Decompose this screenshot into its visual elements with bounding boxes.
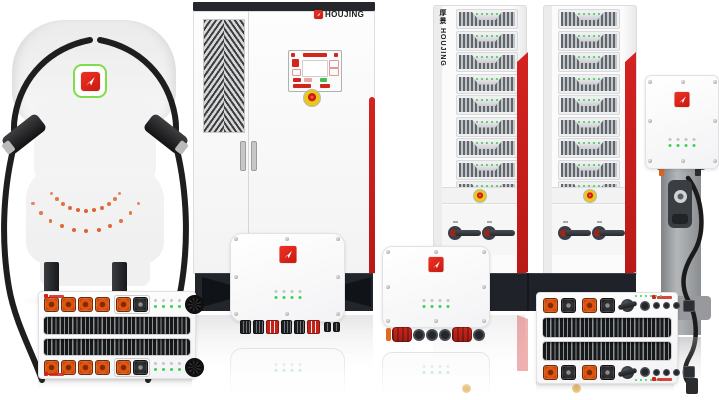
led-dot	[154, 368, 157, 371]
cabinet-brand-label: HOUJING	[325, 10, 364, 19]
led-dot	[486, 164, 488, 166]
led-dot	[282, 290, 285, 293]
module-led-row	[578, 99, 600, 101]
led-dot	[693, 138, 696, 141]
reflection-led-grid	[423, 365, 450, 377]
indicator-dot	[108, 224, 112, 228]
led-dot	[162, 305, 165, 308]
led-dot	[583, 78, 585, 80]
led-dot	[170, 368, 173, 371]
led-dot	[423, 371, 426, 374]
indicator-dot	[72, 228, 76, 232]
power-connector	[44, 297, 59, 312]
led-dot	[439, 299, 442, 302]
led-dot	[274, 296, 277, 299]
module-brand-mark	[44, 294, 64, 298]
charger-module-pair-right	[536, 292, 678, 384]
led-dot	[598, 56, 600, 58]
led-dot	[476, 164, 478, 166]
screw-icon	[234, 275, 238, 279]
status-led-grid	[154, 299, 181, 311]
screw-icon	[234, 312, 238, 316]
connector-group	[114, 358, 150, 377]
rack2-red-stripe	[625, 52, 636, 276]
module-led-row	[578, 56, 600, 58]
led-dot	[431, 305, 434, 308]
led-dot	[677, 138, 680, 141]
right-door-handle	[251, 141, 257, 171]
display-header-bar	[303, 53, 327, 57]
power-connector	[133, 297, 148, 312]
led-dot	[669, 144, 672, 147]
rack1-module-stack	[456, 9, 518, 203]
cursor-arrow-icon	[279, 246, 296, 263]
led-dot	[598, 99, 600, 101]
square-port	[683, 366, 695, 378]
display-cell	[329, 68, 339, 76]
inverter-box-2-reflection	[382, 352, 490, 400]
inverter2-bottom-connectors	[386, 326, 486, 343]
led-dot	[578, 56, 580, 58]
emergency-stop-button	[583, 189, 597, 203]
module-led-row	[578, 78, 600, 80]
led-dot	[170, 305, 173, 308]
led-dot	[496, 99, 498, 101]
power-connector	[95, 360, 110, 375]
led-dot	[282, 363, 285, 366]
led-dot	[423, 305, 426, 308]
power-connector	[116, 360, 131, 375]
indicator-dot	[50, 192, 53, 195]
module-led-row	[476, 13, 498, 15]
screw-icon	[713, 159, 717, 163]
inverter1-bottom-connectors	[238, 320, 338, 333]
led-dot	[496, 35, 498, 37]
power-connector	[78, 360, 93, 375]
power-module-slot	[456, 74, 518, 94]
led-dot	[447, 299, 450, 302]
screw-icon	[713, 119, 717, 123]
screw-icon	[386, 319, 390, 323]
led-dot	[588, 78, 590, 80]
screw-icon	[648, 119, 652, 123]
rack-tower-2	[543, 5, 637, 275]
led-dot	[578, 78, 580, 80]
connector-group	[114, 295, 150, 314]
red-connector-block	[392, 327, 412, 342]
gun-holster	[668, 180, 692, 228]
indicator-dot	[39, 211, 43, 215]
led-dot	[693, 144, 696, 147]
module-brand-mark	[44, 372, 64, 376]
led-dot	[274, 369, 277, 372]
dark-terminal	[240, 320, 251, 334]
led-dot	[578, 35, 580, 37]
rotary-breaker-switch	[558, 221, 592, 239]
status-led-row	[635, 295, 662, 297]
led-dot	[290, 296, 293, 299]
square-port	[683, 300, 695, 312]
screw-icon	[285, 312, 289, 316]
power-module-slot	[558, 117, 620, 137]
gun-trigger	[672, 214, 688, 224]
screw-icon	[681, 80, 685, 84]
round-port	[640, 301, 650, 311]
led-dot	[486, 142, 488, 144]
display-chart-area	[302, 60, 328, 77]
grille-right-half	[224, 20, 244, 132]
status-led-grid	[154, 362, 181, 374]
round-port	[653, 369, 660, 376]
led-dot	[298, 296, 301, 299]
power-connector	[600, 298, 615, 313]
led-dot	[154, 305, 157, 308]
led-row	[274, 363, 301, 366]
emergency-stop-button	[303, 89, 321, 107]
screw-icon	[713, 80, 717, 84]
led-dot	[685, 144, 688, 147]
inverter-box-1-reflection	[230, 348, 345, 400]
led-dot	[447, 305, 450, 308]
led-dot	[588, 56, 590, 58]
led-dot	[593, 35, 595, 37]
module-vent-grille	[43, 338, 191, 357]
screw-icon	[434, 319, 438, 323]
led-dot	[598, 142, 600, 144]
dark-terminal	[253, 320, 264, 334]
led-dot	[583, 164, 585, 166]
module-led-row	[578, 13, 600, 15]
module-led-row	[476, 142, 498, 144]
led-dot	[178, 368, 181, 371]
led-dot	[583, 121, 585, 123]
led-dot	[598, 13, 600, 15]
led-dot	[162, 362, 165, 365]
power-module-slot	[456, 52, 518, 72]
module-led-row	[578, 164, 600, 166]
power-connector	[133, 360, 148, 375]
led-dot	[274, 290, 277, 293]
grille-left-half	[204, 20, 224, 132]
led-dot	[486, 13, 488, 15]
led-dot	[491, 13, 493, 15]
led-dot	[481, 56, 483, 58]
module-led-row	[476, 35, 498, 37]
led-dot	[476, 35, 478, 37]
screw-icon	[434, 250, 438, 254]
led-row	[274, 290, 301, 293]
led-dot	[486, 99, 488, 101]
led-dot	[583, 56, 585, 58]
orange-terminal	[386, 328, 391, 341]
indicator-dot	[113, 197, 117, 201]
product-lineup-banner: HOUJING 厚景 HOUJING	[0, 0, 719, 400]
module-left-reflection	[38, 377, 192, 391]
led-dot	[290, 363, 293, 366]
led-dot	[588, 142, 590, 144]
indicator-dot	[61, 202, 65, 206]
round-connector	[473, 329, 485, 341]
stripe-reflection	[517, 315, 528, 371]
screw-icon	[681, 159, 685, 163]
indicator-dot	[97, 228, 101, 232]
rack2-module-stack	[558, 9, 620, 203]
rack2-estop-row	[552, 187, 628, 204]
led-dot	[578, 13, 580, 15]
left-door-handle	[240, 141, 246, 171]
power-connector	[582, 365, 597, 380]
led-dot	[481, 164, 483, 166]
screw-icon	[234, 237, 238, 241]
led-dot	[290, 369, 293, 372]
indicator-dot	[68, 206, 72, 210]
screw-icon	[285, 237, 289, 241]
screw-icon	[386, 285, 390, 289]
led-row	[423, 365, 450, 368]
power-module-slot	[456, 9, 518, 29]
screw-icon	[648, 159, 652, 163]
led-dot	[598, 164, 600, 166]
indicator-dot	[119, 219, 123, 223]
round-connector	[413, 329, 425, 341]
hmi-display	[288, 50, 342, 92]
screw-icon	[482, 319, 486, 323]
led-dot	[298, 363, 301, 366]
rack1-estop-row	[442, 187, 518, 204]
power-module-slot	[456, 138, 518, 158]
led-dot	[583, 99, 585, 101]
led-dot	[178, 305, 181, 308]
led-row	[154, 305, 181, 308]
round-port	[653, 302, 660, 309]
led-dot	[274, 363, 277, 366]
display-footer-bar	[293, 84, 311, 88]
led-dot	[578, 99, 580, 101]
power-connector	[582, 298, 597, 313]
led-dot	[431, 365, 434, 368]
led-dot	[491, 121, 493, 123]
round-connector	[439, 329, 451, 341]
red-terminal	[266, 320, 279, 334]
rack-tower-1: 厚景 HOUJING	[433, 5, 527, 275]
module-led-row	[578, 35, 600, 37]
rotary-breaker-switch	[592, 221, 626, 239]
display-logo-block	[292, 59, 299, 67]
power-connector	[561, 298, 576, 313]
led-dot	[496, 56, 498, 58]
led-dot	[593, 56, 595, 58]
indicator-dot	[107, 202, 111, 206]
power-module-slot	[558, 52, 620, 72]
indicator-dot	[84, 229, 88, 233]
inverter-box-1	[230, 233, 345, 322]
display-corner-dot	[334, 53, 338, 57]
screw-icon	[336, 237, 340, 241]
led-dot	[593, 78, 595, 80]
led-dot	[677, 144, 680, 147]
led-dot	[578, 121, 580, 123]
power-module-slot	[558, 9, 620, 29]
led-dot	[593, 142, 595, 144]
module-led-row	[578, 121, 600, 123]
base-seam	[527, 273, 529, 311]
screw-icon	[336, 312, 340, 316]
status-led-grid	[669, 138, 696, 150]
led-row	[669, 144, 696, 147]
indicator-dot	[60, 224, 64, 228]
led-dot	[588, 99, 590, 101]
module-led-row	[476, 56, 498, 58]
led-dot	[476, 121, 478, 123]
power-connector	[600, 365, 615, 380]
module-connector-row	[538, 294, 676, 315]
led-dot	[486, 78, 488, 80]
led-dot	[481, 121, 483, 123]
display-footer-bar	[320, 84, 330, 88]
power-connector	[543, 365, 558, 380]
gun-face	[674, 190, 687, 203]
power-module-slot	[558, 74, 620, 94]
indicator-dot	[137, 202, 140, 205]
cursor-arrow-icon	[314, 10, 323, 19]
led-dot	[588, 35, 590, 37]
led-dot	[439, 371, 442, 374]
red-connector-block	[452, 327, 472, 342]
module-led-row	[476, 78, 498, 80]
power-module-slot	[558, 31, 620, 51]
led-dot	[588, 13, 590, 15]
cabinet-red-stripe	[369, 97, 375, 273]
led-dot	[282, 369, 285, 372]
led-dot	[491, 78, 493, 80]
cursor-arrow-icon	[429, 257, 444, 272]
module-led-row	[476, 99, 498, 101]
round-connector	[426, 329, 438, 341]
rack1-red-stripe	[517, 52, 528, 276]
led-dot	[431, 371, 434, 374]
power-connector	[561, 365, 576, 380]
led-dot	[588, 121, 590, 123]
led-dot	[685, 138, 688, 141]
led-row	[423, 305, 450, 308]
indicator-dot	[118, 192, 121, 195]
indicator-dot	[129, 211, 133, 215]
dark-terminal	[281, 320, 292, 334]
power-connector	[61, 297, 76, 312]
led-dot	[578, 142, 580, 144]
led-dot	[481, 13, 483, 15]
power-module-slot	[456, 117, 518, 137]
indicator-dot	[92, 208, 96, 212]
round-port	[640, 367, 650, 377]
led-dot	[486, 35, 488, 37]
led-dot	[496, 78, 498, 80]
led-dot	[439, 305, 442, 308]
display-red-button	[293, 78, 301, 82]
emergency-stop-button	[473, 189, 487, 203]
inverter-box-2	[382, 246, 490, 328]
led-dot	[496, 164, 498, 166]
led-dot	[423, 365, 426, 368]
power-connector	[78, 297, 93, 312]
indicator-dot	[76, 208, 80, 212]
led-row	[154, 299, 181, 302]
power-module-slot	[456, 31, 518, 51]
module-brand-mark	[652, 377, 672, 381]
led-dot	[593, 121, 595, 123]
led-dot	[496, 121, 498, 123]
module-vent-grille	[542, 317, 672, 337]
led-dot	[593, 164, 595, 166]
led-row	[154, 362, 181, 365]
led-dot	[481, 78, 483, 80]
led-dot	[154, 299, 157, 302]
power-connector	[95, 297, 110, 312]
led-dot	[439, 365, 442, 368]
screw-icon	[482, 250, 486, 254]
power-module-slot	[456, 160, 518, 180]
led-dot	[476, 78, 478, 80]
indicator-dot	[84, 209, 88, 213]
led-dot	[476, 142, 478, 144]
led-dot	[486, 56, 488, 58]
led-dot	[486, 121, 488, 123]
led-dot	[162, 299, 165, 302]
led-row	[274, 296, 301, 299]
screw-icon	[648, 80, 652, 84]
fan-icon	[185, 358, 204, 377]
led-dot	[578, 164, 580, 166]
module-vent-grille	[542, 341, 672, 361]
led-row	[423, 299, 450, 302]
power-cabinet: HOUJING	[193, 0, 375, 400]
display-green-button	[320, 78, 327, 82]
power-module-slot	[456, 95, 518, 115]
status-led-grid	[423, 299, 450, 311]
dark-terminal	[294, 320, 305, 334]
screw-icon	[386, 250, 390, 254]
module-led-row	[476, 164, 498, 166]
led-dot	[170, 362, 173, 365]
indicator-dot	[49, 219, 53, 223]
led-dot	[290, 290, 293, 293]
rotary-knob	[621, 299, 634, 312]
screw-icon	[482, 285, 486, 289]
led-dot	[481, 142, 483, 144]
led-dot	[491, 56, 493, 58]
led-dot	[447, 371, 450, 374]
module-led-row	[578, 142, 600, 144]
indicator-dot	[55, 197, 59, 201]
dark-terminal	[324, 322, 331, 332]
wallbox-body	[645, 75, 719, 169]
rotary-breaker-switch	[448, 221, 482, 239]
led-row	[274, 369, 301, 372]
reflection-led-grid	[274, 363, 301, 375]
led-dot	[481, 35, 483, 37]
led-dot	[598, 121, 600, 123]
module-led-row	[476, 121, 498, 123]
led-dot	[282, 296, 285, 299]
led-dot	[491, 142, 493, 144]
led-dot	[583, 13, 585, 15]
charger-module-pair-left	[38, 291, 196, 379]
led-dot	[476, 56, 478, 58]
led-dot	[476, 99, 478, 101]
led-dot	[583, 142, 585, 144]
led-row	[154, 368, 181, 371]
rack-vertical-brand: 厚景 HOUJING	[437, 9, 447, 95]
